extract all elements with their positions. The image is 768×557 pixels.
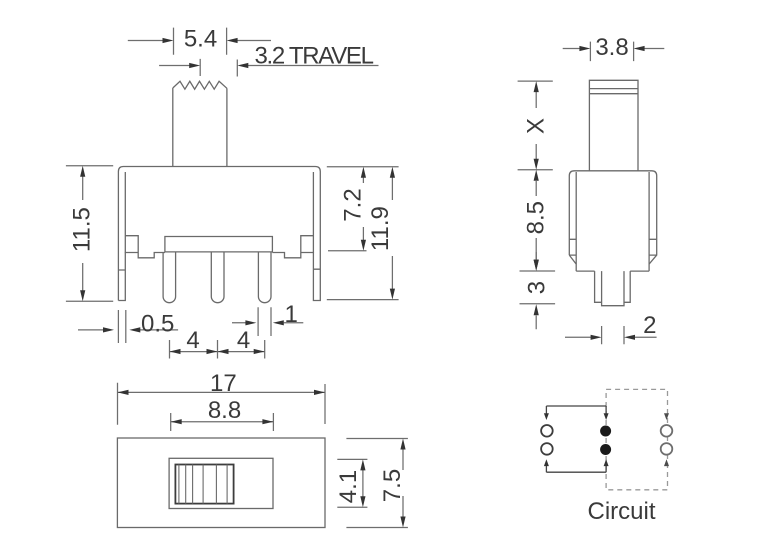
svg-text:17: 17 <box>210 370 237 397</box>
svg-text:11.9: 11.9 <box>367 206 394 251</box>
svg-text:7.5: 7.5 <box>379 469 406 502</box>
svg-text:2: 2 <box>643 312 656 339</box>
svg-text:8.5: 8.5 <box>523 201 550 234</box>
svg-text:4.1: 4.1 <box>335 470 362 503</box>
svg-text:7.2: 7.2 <box>339 188 366 221</box>
svg-text:Circuit: Circuit <box>587 498 655 525</box>
svg-text:4: 4 <box>237 327 250 354</box>
svg-text:8.8: 8.8 <box>208 397 241 424</box>
svg-text:5.4: 5.4 <box>184 26 217 53</box>
svg-text:3.8: 3.8 <box>595 34 628 61</box>
svg-text:X: X <box>523 118 550 134</box>
svg-text:0.5: 0.5 <box>141 311 174 338</box>
svg-text:3.2 TRAVEL: 3.2 TRAVEL <box>255 43 374 70</box>
svg-text:4: 4 <box>186 327 199 354</box>
svg-text:1: 1 <box>285 301 298 328</box>
svg-text:11.5: 11.5 <box>69 207 96 252</box>
svg-text:3: 3 <box>524 281 551 294</box>
